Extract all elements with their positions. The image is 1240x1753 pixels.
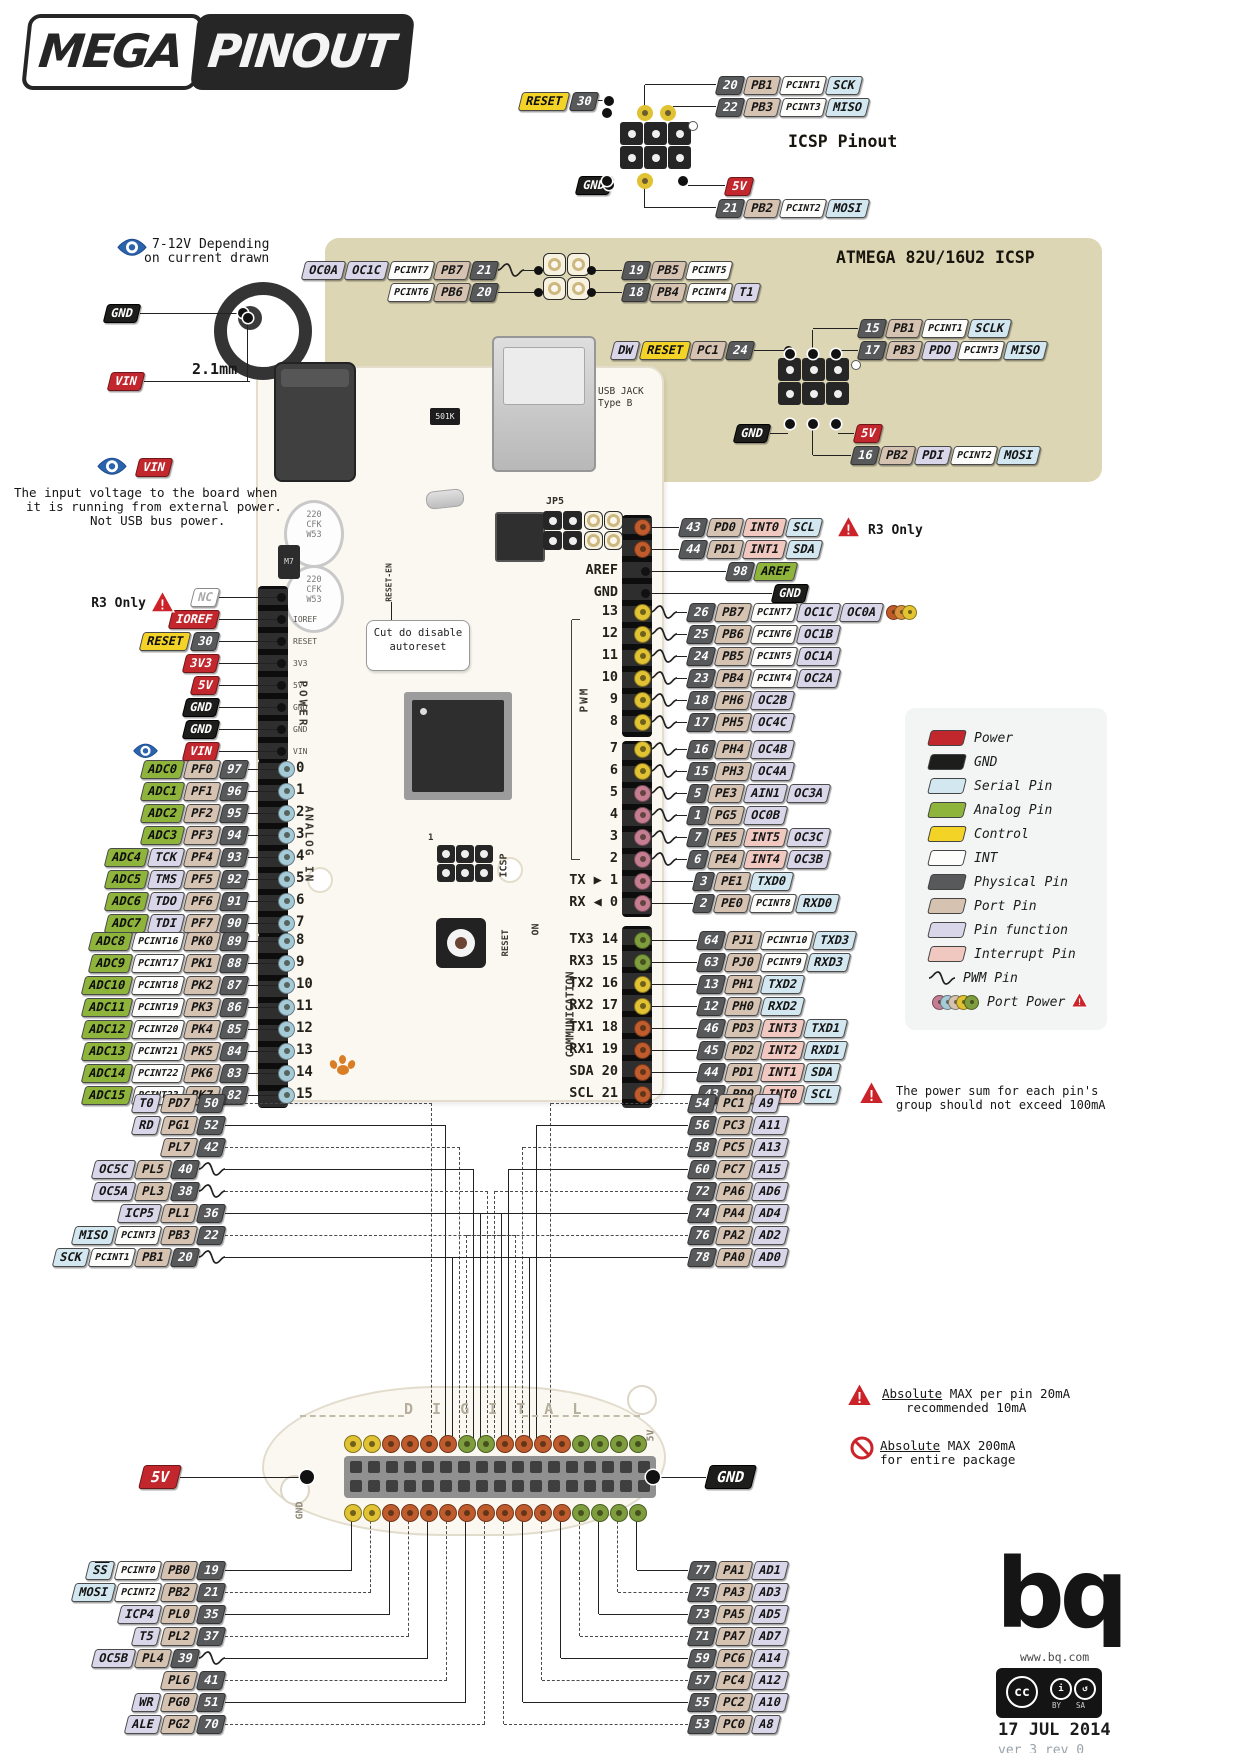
bq-logo: bq [996,1538,1123,1650]
pin-badge-oc2a: OC2A [796,669,842,688]
header-pin [569,537,577,545]
wire [248,857,278,858]
pin-ring [634,954,651,971]
pin-dot [534,266,543,275]
pin-badge-pcint9: PCINT9 [760,953,809,972]
pin-badge-pf7: PF7 [182,914,220,933]
pin-badge-a14: A14 [751,1649,789,1668]
pin-row: IOREF [169,609,286,629]
pin-badge-adc7: ADC7 [104,914,150,933]
pin-badge-42: 42 [195,1138,226,1157]
pin-badge-pb7: PB7 [432,261,470,280]
bottom-pin-hole [350,1510,356,1516]
pin-badge-6: 6 [686,850,710,869]
legend-item-analog: Analog Pin [929,800,1052,820]
pin-badge-gnd: GND [182,720,220,739]
pin-badge-pl1: PL1 [159,1204,197,1223]
header-pin-ring [637,105,653,121]
abs200-line2: for entire package [880,1452,1015,1467]
pin-ring [278,1021,295,1038]
pin-row: OC0AOC1CPCINT7PB721 [302,260,543,280]
pin-dot [641,589,650,598]
pin-row: 7PE5INT5OC3C [634,827,830,847]
wire-vertical [389,1516,390,1614]
pin-badge-5v: 5V [189,676,220,695]
resistor-501k: 501K [430,408,460,425]
pin-row: ADC11PCINT19PK386 [82,997,295,1017]
wire-segment [572,619,580,620]
pin-badge-pcint18: PCINT18 [130,976,185,995]
header-pin-ring [607,534,620,547]
pin-ring-hole [640,546,646,552]
pin-badge-pd3: PD3 [724,1019,762,1038]
pin-badge-pe0: PE0 [713,894,751,913]
power-pin-silk: 3V3 [293,659,307,668]
cc-by-label: BY [1052,1701,1061,1710]
pin-badge-52: 52 [195,1116,226,1135]
analog-pin-number: 3 [296,826,304,842]
pin-row: GND [652,1467,755,1487]
power-pin-silk: GND [293,725,307,734]
port-power-ring [964,995,979,1010]
logo-pinout: PINOUT [190,14,415,90]
pin-badge-pcint0: PCINT0 [113,1561,162,1580]
pin-row: 23PB4PCINT4OC2A [634,668,840,688]
pin-row: OC5CPL540 [92,1159,474,1179]
wire [225,1570,352,1571]
analog-pin-number: 12 [296,1020,313,1036]
absmax-line1: Absolute MAX per pin 20mA [882,1386,1070,1401]
pin-row: 22PB3PCINT3MISO [716,97,869,117]
pin-badge-pe3: PE3 [707,784,745,803]
wire-vertical [560,1516,561,1658]
connector-cell [386,1480,398,1492]
pin-row: 26PB7PCINT7OC1COC0A [634,602,917,622]
pin-row: GND [183,719,286,739]
pin-ring [278,783,295,800]
cc-license-badge: cc i ↺ BY SA [996,1668,1102,1718]
pin-badge-60: 60 [687,1160,718,1179]
wire [677,793,687,794]
wire-vertical [370,1516,371,1592]
pin-badge-ph3: PH3 [714,762,752,781]
pin-badge-pk0: PK0 [182,932,220,951]
wire [523,1702,688,1703]
pin-row: 12PH0RXD2 [634,996,804,1016]
pin-badge-pcint5: PCINT5 [685,261,734,280]
pin-badge-72: 72 [687,1182,718,1201]
wire [652,1477,706,1478]
pin-badge-txd0: TXD0 [749,872,795,891]
digital-pin-silk: TX2 16 [569,975,618,991]
cc-sa-label: SA [1076,1701,1085,1710]
pwm-squiggle-icon [199,1248,225,1266]
pin-badge-17: 17 [857,341,888,360]
wire [248,923,278,924]
pin-badge-37: 37 [195,1627,226,1646]
pin-ring-hole [640,524,646,530]
pin-badge-pk6: PK6 [182,1064,220,1083]
digital-pin-silk: RX2 17 [569,997,618,1013]
wire [225,1680,447,1681]
bottom-pin-hole [464,1510,470,1516]
wire [651,940,697,941]
pin-ring-hole [284,982,290,988]
legend-label: Serial Pin [974,779,1052,794]
pin-badge-73: 73 [687,1605,718,1624]
header-cell [644,146,667,169]
pin-badge-7: 7 [686,828,710,847]
pin-badge-50: 50 [195,1094,226,1113]
pin-ring [278,827,295,844]
pin-ring-hole [284,1070,290,1076]
pin-badge-pa0: PA0 [715,1248,753,1267]
wire [225,1169,474,1170]
pin-row: ADC0PF097 [141,759,295,779]
bottom-pin-hole [578,1441,584,1447]
pin-badge-43: 43 [678,518,709,537]
pin-badge-pf2: PF2 [182,804,220,823]
wire [225,1592,371,1593]
pin-ring [634,763,651,780]
junction-dot [243,313,253,323]
atmega16u2-chip [495,512,545,562]
bottom-pin-ring [344,1435,362,1453]
wire [144,381,250,382]
reset-button [436,918,486,968]
usb-jack-label: USB JACKType B [598,386,644,411]
connector-cell [422,1461,434,1473]
pin-row: OC5BPL439 [92,1648,428,1668]
pin-row: 3PE1TXD0 [634,871,793,891]
legend-item-pwm: PWM Pin [929,968,1018,988]
pin-badge-pe5: PE5 [707,828,745,847]
bottom-pin-hole [407,1510,413,1516]
pin-ring-hole [640,959,646,965]
pin-badge-pcint2: PCINT2 [949,446,998,465]
pin-badge-pa7: PA7 [715,1627,753,1646]
header-cell [604,531,623,550]
analog-pin-number: 14 [296,1064,313,1080]
connector-cell [512,1461,524,1473]
legend-item-port: Port Pin [929,896,1037,916]
pin-badge-41: 41 [195,1671,226,1690]
pin-badge-pd7: PD7 [159,1094,197,1113]
pin-badge-98: 98 [725,562,756,581]
legend-item-num: Physical Pin [929,872,1068,892]
digital-pin-silk: RX ◀ 0 [569,894,618,910]
connector-cell [440,1480,452,1492]
bottom-pin-ring [610,1435,628,1453]
wire [651,1072,697,1073]
digital-pin-silk: 10 [602,669,618,685]
pin-row: ADC3PF394 [141,825,295,845]
pin-badge-pb1: PB1 [133,1248,171,1267]
pin-badge-mosi: MOSI [996,446,1042,465]
junction-dot [678,176,688,186]
pin-badge-dw: DW [610,341,641,360]
pin-badge-3: 3 [692,872,716,891]
pwm-squiggle-icon [651,740,677,758]
pin-ring-hole [640,812,646,818]
vin-note-badge: VIN [135,458,173,477]
pin-row: 54PC1A9 [551,1093,781,1113]
pwm-squiggle-icon [929,969,955,987]
pin-ring-hole [640,1047,646,1053]
wire [599,1614,688,1615]
pin-badge-pd1: PD1 [724,1063,762,1082]
pin-row: ADC9PCINT17PK188 [89,953,295,973]
pin-dot [587,288,596,297]
pin-badge-oc5c: OC5C [91,1160,137,1179]
pin-badge-miso: MISO [825,98,871,117]
pin-badge-pcint7: PCINT7 [386,261,435,280]
pin-ring-hole [284,960,290,966]
pin-row: 21PB2PCINT2MOSI [716,198,869,218]
pin-badge-59: 59 [687,1649,718,1668]
pin-dot [277,593,286,602]
pin-ring [634,541,651,558]
pin-badge-t5: T5 [131,1627,162,1646]
wire-vertical [579,1516,580,1636]
pin-ring [634,692,651,709]
pin-badge-adc9: ADC9 [88,954,134,973]
wire [248,835,278,836]
pin-badge-pcint16: PCINT16 [130,932,185,951]
wire [225,1614,390,1615]
bottom-pin-ring [496,1435,514,1453]
r3-only-right: R3 Only [868,523,923,538]
pin-badge-pb6: PB6 [714,625,752,644]
junction-dot [646,1470,660,1484]
legend-label: Port Power [987,995,1065,1010]
pin-badge-pb0: PB0 [159,1561,197,1580]
bottom-pin-hole [559,1510,565,1516]
pin-badge-gnd: GND [103,304,141,323]
header-cell [563,511,582,530]
wire [651,984,697,985]
pin-badge-a15: A15 [751,1160,789,1179]
analog-pin-number: 5 [296,870,304,886]
pin-row: ADC2PF295 [141,803,295,823]
pin-badge-int3: INT3 [760,1019,806,1038]
wire [219,729,277,730]
pin-ring-hole [284,876,290,882]
pin-badge-25: 25 [686,625,717,644]
pwm-squiggle-icon [498,261,524,279]
connector-cell [620,1461,632,1473]
wire [551,1103,688,1104]
bottom-pin-ring [534,1435,552,1453]
pin-badge-tdi: TDI [147,914,185,933]
bottom-pin-hole [369,1510,375,1516]
bottom-pin-hole [540,1441,546,1447]
header-cell [456,864,474,882]
pin-badge-reset: RESET [139,632,192,651]
pin-badge-pf6: PF6 [182,892,220,911]
digital-pin-silk: TX ▶ 1 [569,872,618,888]
pin-badge-txd2: TXD2 [760,975,806,994]
legend-item-ctrl: Control [929,824,1029,844]
pin-badge-pcint1: PCINT1 [87,1248,136,1267]
wire [225,1636,409,1637]
pin-badge-pcint7: PCINT7 [750,603,799,622]
power-pin-silk: GND [293,703,307,712]
pin-badge-94: 94 [218,826,249,845]
icsp-top-header [620,122,691,169]
pin-badge-21: 21 [195,1583,226,1602]
connector-cell [404,1480,416,1492]
wire [651,1050,697,1051]
bottom-pin-hole [502,1510,508,1516]
pin1-marker [688,121,698,131]
pin-badge-20: 20 [715,76,746,95]
wire [248,985,278,986]
bottom-pin-hole [540,1510,546,1516]
connector-cell [548,1461,560,1473]
pin-badge-pa4: PA4 [715,1204,753,1223]
connector-cell [422,1480,434,1492]
wire [580,1636,688,1637]
diode-m7: M7 [278,545,300,579]
wire [651,962,697,963]
digital-pin-silk: GND [594,584,618,600]
pin-badge-93: 93 [218,848,249,867]
pin-ring-hole [284,788,290,794]
pin-row: ADC14PCINT22PK683 [82,1063,295,1083]
bottom-pin-ring [496,1504,514,1522]
pin-badge-45: 45 [696,1041,727,1060]
pin-badge-89: 89 [218,932,249,951]
pin-badge-pb3: PB3 [885,341,923,360]
pin-ring-hole [640,768,646,774]
pwm-squiggle-icon [651,647,677,665]
legend-item-func: Pin function [929,920,1068,940]
pwm-silk: PWM [578,670,591,730]
legend-label: GND [974,755,997,770]
junction-dot [602,108,612,118]
pin-badge-txd3: TXD3 [812,931,858,950]
header-pin [676,154,684,162]
wire [248,813,278,814]
connector-cell [368,1461,380,1473]
wire-segment [688,185,725,186]
pin-badge-90: 90 [218,914,249,933]
pin-badge-pcint4: PCINT4 [685,283,734,302]
icsp-pinout-title: ICSP Pinout [788,132,897,151]
pin-ring-hole [284,898,290,904]
pin-badge-pb2: PB2 [743,199,781,218]
legend-label: Power [974,731,1013,746]
pin-badge-87: 87 [218,976,249,995]
pin-badge-pcint1: PCINT1 [921,319,970,338]
digital-pin-silk: 3 [610,828,618,844]
autoreset-note: Cut do disableautoreset [366,620,470,671]
digital-pin-silk: RX3 15 [569,953,618,969]
digital-connector [344,1456,656,1498]
pin-ring-hole [284,854,290,860]
connector-cell [368,1480,380,1492]
pin-ring [634,998,651,1015]
pin-ring [278,977,295,994]
header-pin-ring [587,514,600,527]
pin-row: 2PE0PCINT8RXD0 [634,893,839,913]
pin-badge-ad1: AD1 [751,1561,789,1580]
pin-badge-18: 18 [686,691,717,710]
pin-row: 25PB6PCINT6OC1B [634,624,840,644]
pin-ring-hole [284,1004,290,1010]
warning-icon: ! [1071,992,1088,1012]
pin-badge-miso: MISO [70,1226,116,1245]
pin-badge-sck: SCK [825,76,863,95]
pin-badge-70: 70 [195,1715,226,1734]
wire-segment [572,859,580,860]
pwm-squiggle-icon [651,691,677,709]
pin-badge-vin: VIN [182,742,220,761]
legend-label: PWM Pin [963,971,1018,986]
legend-swatch [927,730,967,746]
jp5-silk: JP5 [546,496,564,507]
pin-badge-64: 64 [696,931,727,950]
pin-badge-pj0: PJ0 [724,953,762,972]
wire [813,328,858,329]
abs200-line1: Absolute MAX 200mA [880,1438,1015,1453]
digital-pin-silk: 8 [610,713,618,729]
bottom-pin-hole [445,1510,451,1516]
pin-badge-pcint6: PCINT6 [386,283,435,302]
pin-row: 17PB3PDOPCINT3MISO [836,340,1047,360]
pwm-squiggle-icon [199,1160,225,1178]
pin-badge-pl7: PL7 [159,1138,197,1157]
wire [248,1029,278,1030]
pin-row: 5V [838,423,882,443]
pin-dot [277,681,286,690]
pin-badge-17: 17 [686,713,717,732]
pin-badge-pc7: PC7 [715,1160,753,1179]
pin-row: VIN [183,741,286,761]
pin-badge-pb6: PB6 [432,283,470,302]
header-pin [549,537,557,545]
svg-text:!: ! [844,522,852,538]
bottom-pin-hole [350,1441,356,1447]
pin-badge-oc1b: OC1B [796,625,842,644]
pin-row: T0PD750 [132,1093,432,1113]
wire-vertical [541,1516,542,1680]
logo-mega: MEGA [21,14,204,90]
pin-badge-pe1: PE1 [713,872,751,891]
pin-ring-hole [640,653,646,659]
header-cell [604,511,623,530]
pin-ring [634,714,651,731]
pin-row: 58PC5A13 [523,1137,788,1157]
pin-badge-pb5: PB5 [649,261,687,280]
pin-badge-t1: T1 [731,283,762,302]
pin-badge-16: 16 [850,446,881,465]
pin-ring-hole [284,1048,290,1054]
pin-badge-adc14: ADC14 [80,1064,133,1083]
pin-badge-pcint17: PCINT17 [130,954,185,973]
bottom-pin-hole [597,1441,603,1447]
pin-row: GND [183,697,286,717]
pin-badge-nc: NC [189,588,220,607]
pin-badge-oc3b: OC3B [785,850,831,869]
pin-badge-58: 58 [687,1138,718,1157]
pin-badge-19: 19 [621,261,652,280]
pin-row: SSPCINT0PB019 [86,1560,352,1580]
pin-badge-sda: SDA [803,1063,841,1082]
pin-row: 13PH1TXD2 [634,974,804,994]
pin-badge-pcint22: PCINT22 [130,1064,185,1083]
